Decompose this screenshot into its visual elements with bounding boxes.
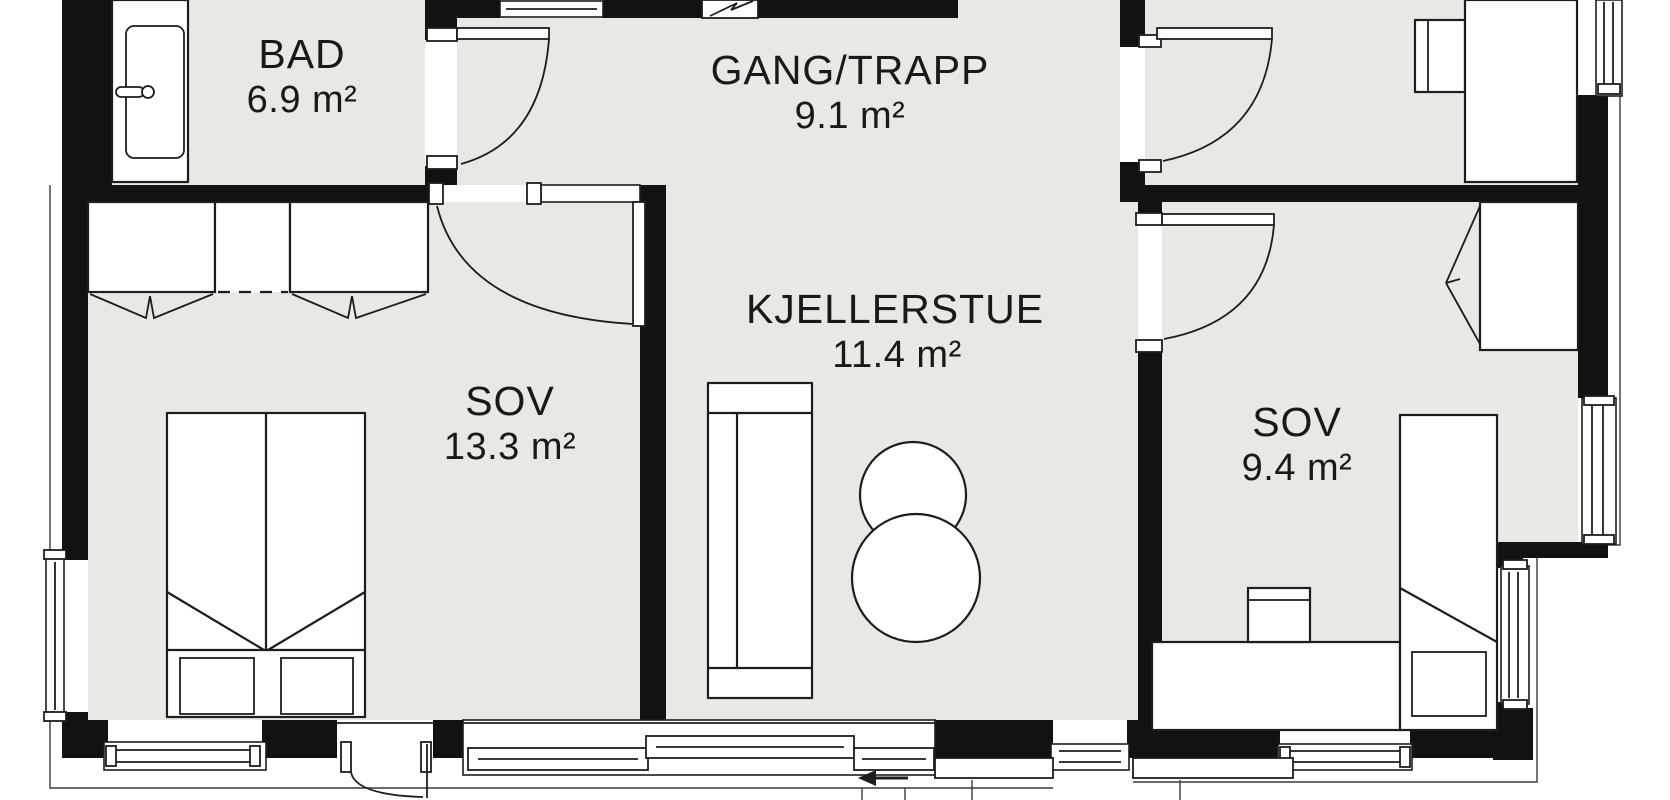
exterior-step-middle [935,758,1053,778]
bathtub [112,0,188,182]
bathtub-faucet [116,87,144,97]
nightstand-sov-right [1248,588,1310,642]
label-kjellerstue-area: 11.4 m² [832,334,962,376]
label-sov-left-name: SOV [465,378,555,424]
exterior-step-right [1133,758,1293,778]
window-right-top-cap [1598,84,1620,94]
window-left-cap-bottom [44,712,66,721]
door-jamb-sov-left-b [527,183,541,204]
floor-plan-drawing: BAD 6.9 m² GANG/TRAPP 9.1 m² KJELLERSTUE… [0,0,1670,800]
wall-top-3 [758,0,958,18]
floor-plan-page: BAD 6.9 m² GANG/TRAPP 9.1 m² KJELLERSTUE… [0,0,1670,800]
sideboard-sov-right [1152,642,1400,730]
window-right-mid-cap-bottom [1584,535,1614,544]
door-sov-left-leaf [633,202,645,326]
door-bottom-jamb-a [341,742,351,772]
door-jamb-sov-right-b [1136,340,1162,352]
wall-corner-bottom-right [1493,708,1533,760]
bed-sov-left [167,413,365,717]
door-bad-leaf [457,28,549,39]
wall-below-bad [62,185,433,202]
bed-right-pillow [1412,652,1486,716]
label-sov-right-name: SOV [1252,399,1342,445]
sofa [708,383,812,698]
wall-right-upper [1578,95,1608,398]
door-jamb-bad-top [427,28,457,41]
door-jamb-sov-left-a [429,183,443,204]
wall-bottom-3 [433,720,463,758]
window-bottom-3-frame [1278,744,1412,770]
window-right-mid-cap-top [1584,396,1614,405]
sofa-outline [708,383,812,698]
window-bottom-1-cap-b [250,746,260,766]
window-bottom-1-cap-a [106,746,116,766]
door-gap-top-right [1120,47,1145,162]
wall-bottom-2 [262,720,337,758]
window-left-cap-top [44,550,66,559]
label-gang-name: GANG/TRAPP [711,47,990,93]
window-right-mid-frame [1582,398,1616,544]
label-sov-left-area: 13.3 m² [444,426,576,468]
window-right-top-frame [1596,0,1622,96]
bathtub-faucet-knob [142,86,154,98]
label-sov-right-area: 9.4 m² [1242,447,1353,489]
wall-bottom-4 [935,720,1053,758]
wall-right-horizontal [1120,185,1608,202]
window-right-low-cap-top [1503,560,1527,569]
nightstand-top-right [1415,20,1465,92]
wardrobe-unit-c [290,202,428,292]
wall-bottom-1 [62,720,108,758]
wall-top-1 [425,0,500,18]
window-left-gap [62,560,88,712]
window-right-low-frame [1501,566,1529,704]
bed-top-right [1465,0,1577,182]
door-sov-right-leaf [1162,214,1274,225]
door-gap-sov-left [433,185,541,202]
door-jamb-top-right-b [1139,160,1161,172]
wall-top-2 [603,0,702,18]
window-right-low-cap-bottom [1503,700,1527,709]
round-table-large [852,514,980,642]
wardrobe-right-outline [1480,202,1578,350]
door-gap-sov-right [1138,225,1162,340]
window-bottom-3-cap-b [1400,747,1410,767]
door-top-right-leaf [1157,28,1272,39]
wardrobe-unit-a [88,202,215,292]
label-bad-area: 6.9 m² [247,79,358,121]
wardrobe-unit-b [215,202,290,292]
door-gap-bad [425,40,457,166]
door-bottom-jamb-b [421,742,431,772]
wall-left-upper [62,0,112,185]
label-bad-name: BAD [258,31,345,77]
door-jamb-sov-right-a [1136,213,1162,225]
window-bottom-2-frame [1051,744,1129,770]
bed-left-pillow-b [281,658,353,714]
label-kjellerstue-name: KJELLERSTUE [746,286,1044,332]
door-head-band-sov-left [541,185,640,202]
label-gang-area: 9.1 m² [795,95,906,137]
door-jamb-bad-bottom [427,156,457,169]
window-bottom-1-frame [104,742,266,770]
bed-left-pillow-a [180,658,254,714]
